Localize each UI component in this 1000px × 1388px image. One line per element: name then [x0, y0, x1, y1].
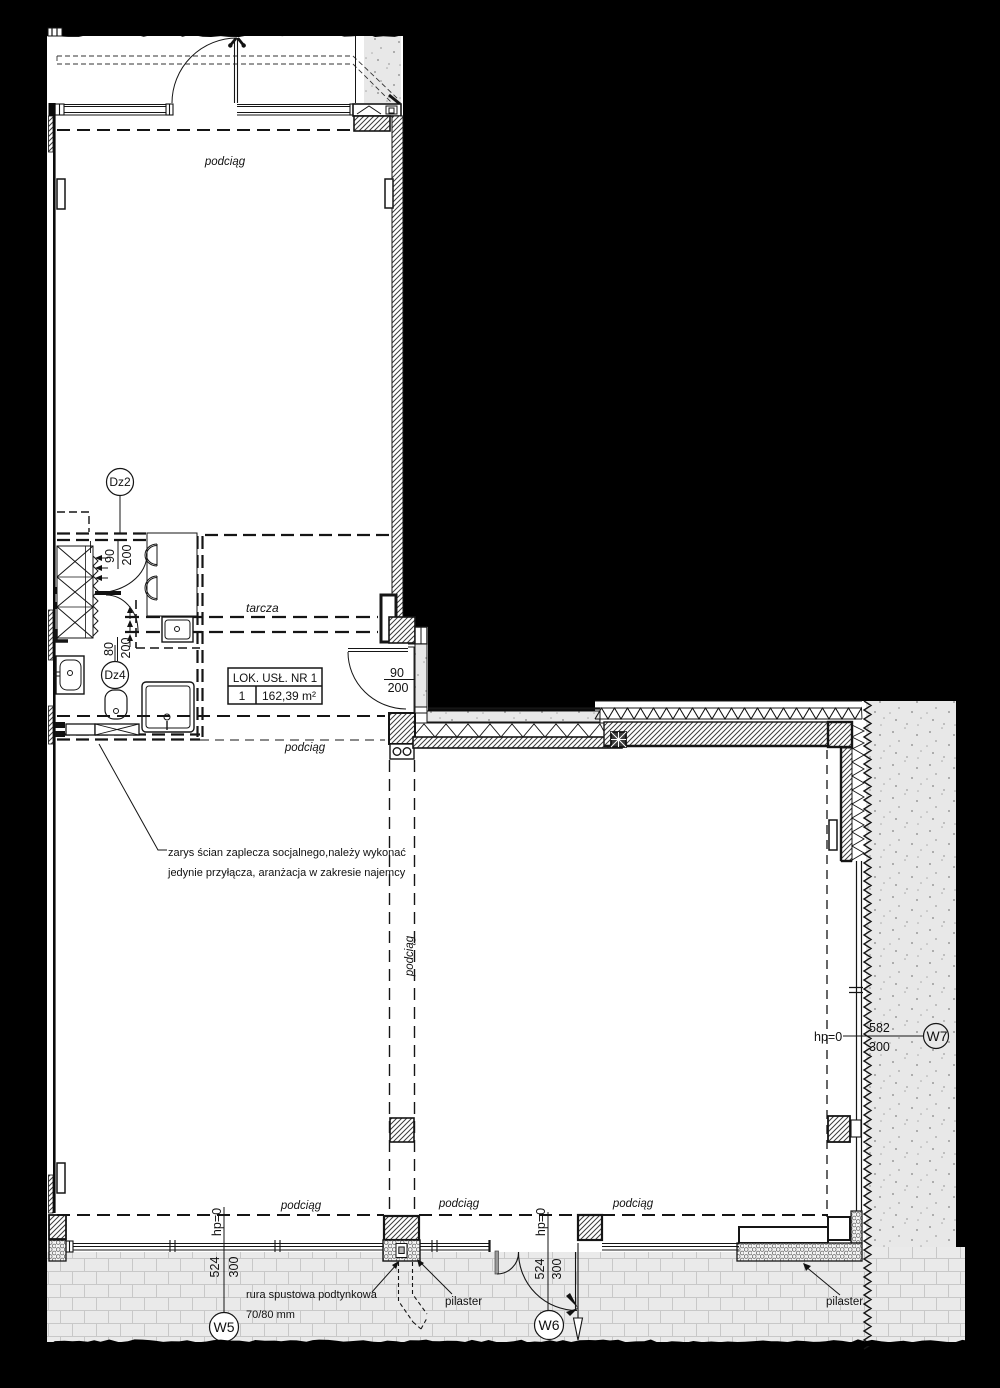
svg-text:200: 200: [119, 638, 133, 659]
svg-text:90: 90: [390, 666, 404, 680]
svg-text:tarcza: tarcza: [246, 601, 279, 615]
svg-text:90: 90: [103, 549, 117, 563]
svg-text:300: 300: [869, 1040, 890, 1054]
svg-text:524: 524: [208, 1257, 222, 1278]
svg-text:W7: W7: [927, 1028, 948, 1044]
svg-text:W6: W6: [539, 1317, 560, 1333]
svg-text:jedynie przyłącza, aranżacja w: jedynie przyłącza, aranżacja w zakresie …: [167, 867, 406, 879]
svg-text:pilaster: pilaster: [445, 1296, 482, 1308]
svg-text:rura spustowa podtynkowa: rura spustowa podtynkowa: [246, 1289, 378, 1301]
svg-text:podciąg: podciąg: [438, 1198, 480, 1210]
svg-text:Dz4: Dz4: [104, 668, 126, 682]
svg-text:1: 1: [239, 689, 246, 703]
svg-text:162,39 m²: 162,39 m²: [262, 689, 316, 703]
svg-text:hp=0: hp=0: [210, 1208, 224, 1236]
svg-text:podciąg: podciąg: [284, 742, 326, 754]
svg-text:LOK. USŁ. NR 1: LOK. USŁ. NR 1: [233, 673, 317, 685]
svg-text:zarys ścian zaplecza socjalneg: zarys ścian zaplecza socjalnego,należy w…: [168, 847, 406, 859]
svg-text:hp=0: hp=0: [814, 1030, 842, 1044]
svg-text:80: 80: [102, 642, 116, 656]
svg-text:70/80 mm: 70/80 mm: [246, 1309, 295, 1321]
svg-text:300: 300: [227, 1257, 241, 1278]
svg-text:200: 200: [388, 681, 409, 695]
svg-text:podciąg: podciąg: [612, 1198, 654, 1210]
svg-text:300: 300: [550, 1259, 564, 1280]
svg-text:200: 200: [120, 545, 134, 566]
svg-text:pilaster: pilaster: [826, 1296, 863, 1308]
svg-text:W5: W5: [214, 1319, 235, 1335]
svg-text:podciąg: podciąg: [204, 156, 246, 168]
svg-text:524: 524: [533, 1259, 547, 1280]
svg-text:podciąg: podciąg: [404, 935, 416, 977]
svg-text:Dz2: Dz2: [109, 475, 131, 489]
svg-text:podciąg: podciąg: [280, 1200, 322, 1212]
svg-text:582: 582: [869, 1021, 890, 1035]
svg-text:hp=0: hp=0: [534, 1208, 548, 1236]
